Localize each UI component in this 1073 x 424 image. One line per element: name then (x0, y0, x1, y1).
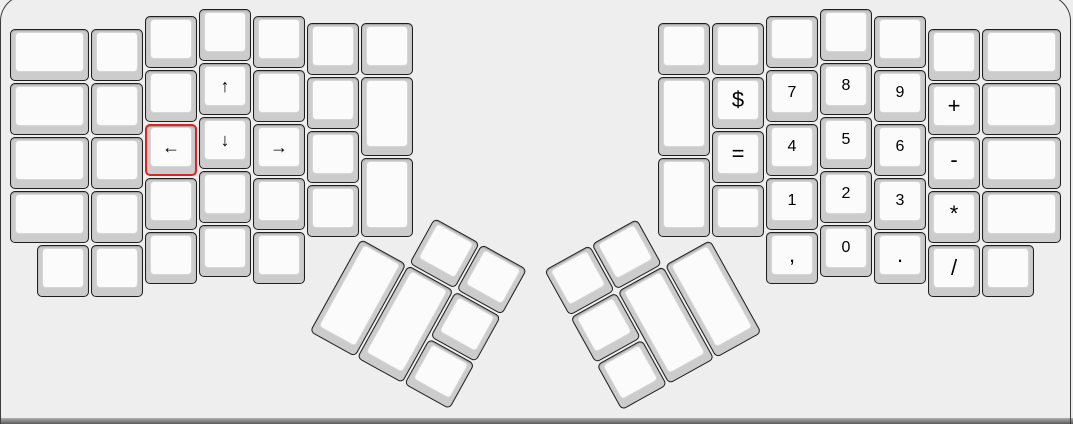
keycap-top: 3 (879, 181, 921, 221)
key-legend: 2 (842, 186, 851, 202)
key-blank[interactable] (91, 191, 143, 243)
key-5[interactable]: 5 (820, 117, 872, 169)
keycap-top (150, 73, 192, 113)
keycap-top (550, 250, 606, 305)
key-plus[interactable]: + (928, 83, 980, 135)
key-2[interactable]: 2 (820, 171, 872, 223)
keycap-top (258, 235, 300, 275)
key-blank[interactable] (37, 245, 89, 297)
keycap-top (312, 80, 354, 120)
keycap-top (312, 26, 354, 66)
keycap-top (366, 26, 408, 66)
keycap-top (96, 86, 138, 126)
key-8[interactable]: 8 (820, 63, 872, 115)
key-blank[interactable] (361, 158, 413, 237)
keycap-top (204, 12, 246, 52)
keycap-top (825, 12, 867, 52)
keycap-top: = (717, 134, 759, 174)
keycap-top (150, 181, 192, 221)
keycap-top (717, 188, 759, 228)
keycap-top (258, 181, 300, 221)
key-legend: 0 (842, 240, 851, 256)
key-down-arrow[interactable]: ↓ (199, 117, 251, 169)
keycap-top (96, 248, 138, 288)
key-blank[interactable] (145, 232, 197, 284)
key-legend: 8 (842, 78, 851, 94)
key-legend: ← (162, 138, 180, 156)
key-blank[interactable] (712, 23, 764, 75)
keycap-top (987, 248, 1029, 288)
keycap-top: ↑ (204, 66, 246, 106)
key-left-arrow[interactable]: ← (145, 124, 197, 176)
key-blank[interactable] (712, 185, 764, 237)
key-blank[interactable] (307, 131, 359, 183)
keycap-top (663, 26, 705, 66)
key-blank[interactable] (199, 9, 251, 61)
key-blank[interactable] (91, 83, 143, 135)
key-legend: . (897, 244, 903, 266)
key-blank[interactable] (658, 23, 710, 75)
key-blank[interactable] (928, 29, 980, 81)
key-blank[interactable] (10, 29, 89, 81)
key-blank[interactable] (766, 16, 818, 68)
key-4[interactable]: 4 (766, 124, 818, 176)
keycap-top (366, 80, 408, 147)
key-blank[interactable] (982, 245, 1034, 297)
keycap-top: / (933, 248, 975, 288)
keycap-top: 7 (771, 73, 813, 113)
key-equals[interactable]: = (712, 131, 764, 183)
keycap-top (987, 86, 1056, 126)
keycap-top (418, 222, 474, 277)
key-blank[interactable] (91, 29, 143, 81)
key-blank[interactable] (10, 137, 89, 189)
keycap-top (879, 19, 921, 59)
keycap-top (987, 32, 1056, 72)
keycap-top: 9 (879, 73, 921, 113)
keycap-top (96, 194, 138, 234)
keycap-top: + (933, 86, 975, 126)
key-blank[interactable] (145, 16, 197, 68)
key-legend: 1 (788, 193, 797, 209)
bottom-edge (0, 418, 1073, 424)
keycap-top (15, 32, 84, 72)
key-blank[interactable] (307, 77, 359, 129)
keycap-top (150, 235, 192, 275)
key-blank[interactable] (145, 178, 197, 230)
keycap-top (597, 223, 653, 278)
key-7[interactable]: 7 (766, 70, 818, 122)
key-1[interactable]: 1 (766, 178, 818, 230)
key-legend: ↓ (221, 131, 230, 149)
keyboard-canvas: ←↑↓→$=741852963+-*,0./ (0, 0, 1073, 424)
keycap-top (465, 249, 521, 304)
keycap-top (42, 248, 84, 288)
keycap-top (96, 140, 138, 180)
keycap-top (96, 32, 138, 72)
key-period[interactable]: . (874, 232, 926, 284)
key-up-arrow[interactable]: ↑ (199, 63, 251, 115)
key-blank[interactable] (658, 77, 710, 156)
keycap-top: ← (150, 127, 192, 167)
keycap-top (987, 140, 1056, 180)
key-legend: 3 (896, 193, 905, 209)
keycap-top: 6 (879, 127, 921, 167)
keycap-top: - (933, 140, 975, 180)
keycap-top (663, 161, 705, 228)
key-blank[interactable] (874, 16, 926, 68)
key-legend: $ (732, 89, 744, 111)
key-blank[interactable] (199, 171, 251, 223)
key-6[interactable]: 6 (874, 124, 926, 176)
keycap-top: * (933, 194, 975, 234)
key-comma[interactable]: , (766, 232, 818, 284)
key-3[interactable]: 3 (874, 178, 926, 230)
key-slash[interactable]: / (928, 245, 980, 297)
key-legend: 4 (788, 139, 797, 155)
keycap-top: 2 (825, 174, 867, 214)
key-blank[interactable] (253, 178, 305, 230)
keycap-top (204, 228, 246, 268)
key-blank[interactable] (91, 245, 143, 297)
key-blank[interactable] (361, 23, 413, 75)
key-legend: = (732, 143, 745, 165)
keycap-top: 8 (825, 66, 867, 106)
key-legend: 9 (896, 85, 905, 101)
keycap-top: 1 (771, 181, 813, 221)
key-legend: + (948, 95, 961, 117)
key-legend: 5 (842, 132, 851, 148)
key-legend: / (951, 257, 957, 279)
keycap-top (366, 161, 408, 228)
keycap-top (312, 188, 354, 228)
keycap-top: 4 (771, 127, 813, 167)
keycap-top (204, 174, 246, 214)
key-legend: - (950, 149, 957, 171)
keycap-top: → (258, 127, 300, 167)
keycap-top (312, 134, 354, 174)
keycap-top (771, 19, 813, 59)
key-blank[interactable] (982, 137, 1061, 189)
key-blank[interactable] (307, 23, 359, 75)
key-legend: 6 (896, 139, 905, 155)
key-blank[interactable] (307, 185, 359, 237)
key-blank[interactable] (820, 9, 872, 61)
keycap-top (15, 194, 84, 234)
key-blank[interactable] (361, 77, 413, 156)
keycap-top (663, 80, 705, 147)
key-blank[interactable] (982, 191, 1061, 243)
key-blank[interactable] (10, 191, 89, 243)
key-blank[interactable] (253, 16, 305, 68)
keycap-top (15, 86, 84, 126)
keycap-top: . (879, 235, 921, 275)
keycap-top: 0 (825, 228, 867, 268)
key-legend: → (270, 138, 288, 156)
key-dollar[interactable]: $ (712, 77, 764, 129)
key-legend: * (950, 203, 959, 225)
key-blank[interactable] (982, 83, 1061, 135)
keycap-top (987, 194, 1056, 234)
key-blank[interactable] (253, 70, 305, 122)
key-blank[interactable] (982, 29, 1061, 81)
keycap-top: $ (717, 80, 759, 120)
key-legend: 7 (788, 85, 797, 101)
key-blank[interactable] (10, 83, 89, 135)
key-0[interactable]: 0 (820, 225, 872, 277)
key-legend: ↑ (221, 77, 230, 95)
key-minus[interactable]: - (928, 137, 980, 189)
key-blank[interactable] (91, 137, 143, 189)
key-legend: , (789, 244, 795, 266)
keycap-top: , (771, 235, 813, 275)
keycap-top (717, 26, 759, 66)
key-blank[interactable] (199, 225, 251, 277)
keycap-top (150, 19, 192, 59)
key-blank[interactable] (253, 232, 305, 284)
keycap-top: 5 (825, 120, 867, 160)
key-9[interactable]: 9 (874, 70, 926, 122)
key-blank[interactable] (145, 70, 197, 122)
keycap-top (258, 19, 300, 59)
keycap-top (15, 140, 84, 180)
keycap-top: ↓ (204, 120, 246, 160)
keycap-top (933, 32, 975, 72)
key-right-arrow[interactable]: → (253, 124, 305, 176)
keycap-top (258, 73, 300, 113)
key-asterisk[interactable]: * (928, 191, 980, 243)
key-blank[interactable] (658, 158, 710, 237)
